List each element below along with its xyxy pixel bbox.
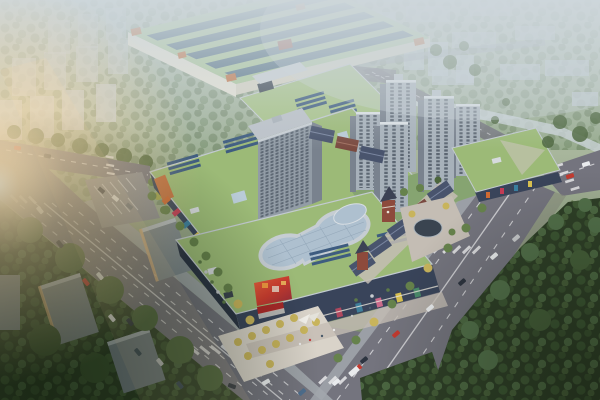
aerial-rendering: Aerial rendering of mixed-use mall devel… — [0, 0, 600, 400]
rendering-canvas: Aerial rendering of mixed-use mall devel… — [0, 0, 600, 400]
